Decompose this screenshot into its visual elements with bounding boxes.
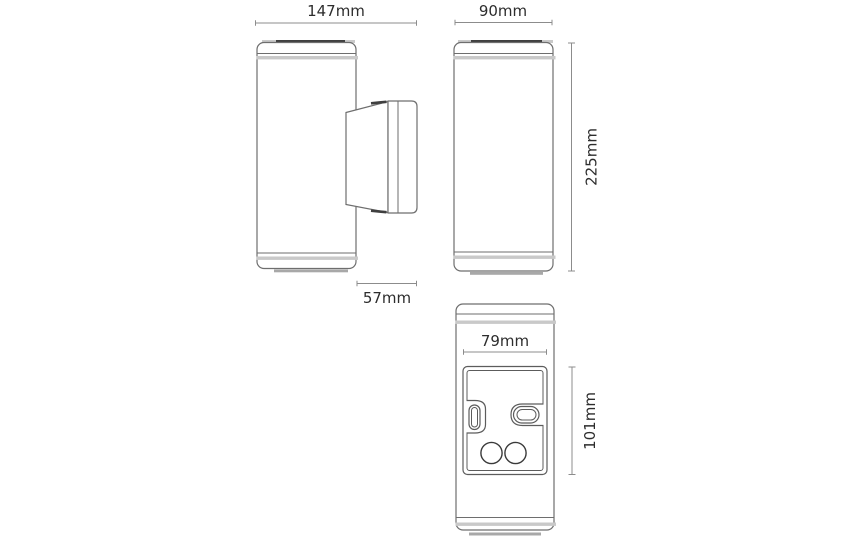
front-view-bottom-gasket-band [454,256,556,259]
front-view-bottom-cap-shadow [470,272,543,275]
side-view-bracket-arm [346,102,388,213]
wall-light-dimension-drawing: 147mm 90mm 225mm 57mm 79mm [0,0,856,540]
dimension-front-width: 90mm [455,2,552,25]
side-view-bracket-bottom-dark-edge [371,211,387,213]
dimension-label-90mm: 90mm [479,2,527,20]
front-view-body [454,43,553,272]
dimension-bracket-depth: 57mm [357,281,417,307]
side-view-bottom-gasket-band [257,257,359,260]
side-view [257,40,418,272]
dimension-label-57mm: 57mm [363,289,411,307]
technical-drawing-page: 147mm 90mm 225mm 57mm 79mm [0,0,856,540]
dimension-label-147mm: 147mm [307,2,365,20]
keyhole-slot-left-outer [469,405,480,430]
side-view-bracket-top-dark-edge [371,102,387,104]
side-view-bracket-wall-plate [388,101,417,213]
dimension-label-101mm: 101mm [581,392,599,450]
side-view-bottom-cap-shadow [274,270,348,273]
dimension-front-height: 225mm [568,43,601,271]
side-view-body [257,43,356,269]
back-view-bottom-gasket-band [456,523,557,526]
dimension-plate-height: 101mm [569,367,600,475]
front-view [454,40,556,275]
dimension-label-225mm: 225mm [583,128,601,186]
front-view-top-gasket-band [454,56,556,59]
back-view-top-gasket-band [456,321,557,324]
dimension-side-total-width: 147mm [256,2,417,26]
back-view-bottom-cap-shadow [469,533,541,536]
dimension-label-79mm: 79mm [481,332,529,350]
side-view-top-gasket-band [257,56,359,59]
